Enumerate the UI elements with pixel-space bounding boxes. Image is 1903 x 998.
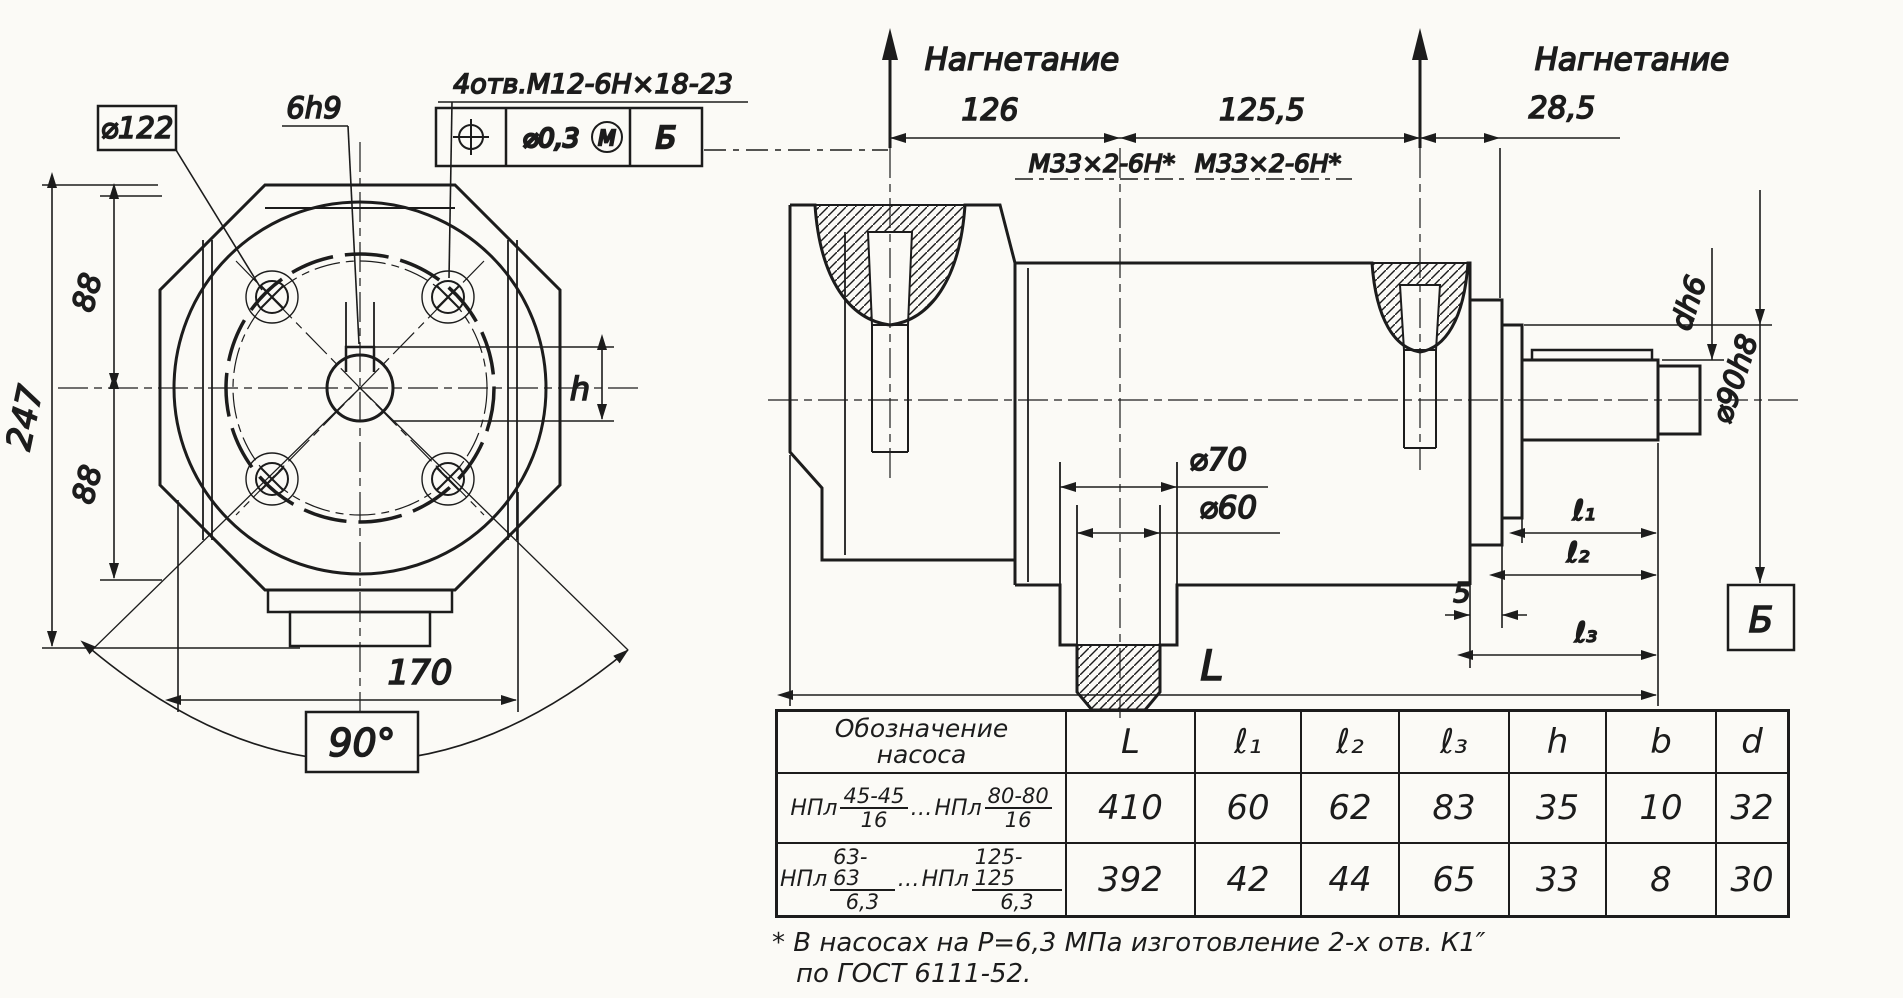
drawing-sheet: 247 88 88 ⌀122 6h9 4отв.М12-6Н×18-23 [0, 0, 1903, 998]
dim5-label: 5 [1453, 576, 1471, 609]
dia60-label: ⌀60 [1199, 490, 1257, 526]
fcf-modifier-label: М [598, 126, 615, 150]
dim-h-label: h [570, 370, 590, 408]
dim-88-top-label: 88 [66, 270, 110, 316]
suction-boss-lines [1060, 462, 1177, 645]
col-header-d: d [1717, 712, 1787, 774]
discharge-left: Нагнетание [882, 28, 1119, 148]
datum-b-flag: Б [1728, 585, 1794, 650]
row2-b: 8 [1607, 844, 1717, 915]
L-label: L [1200, 641, 1223, 690]
discharge-right-label: Нагнетание [1535, 42, 1729, 78]
up-arrow-icon [1412, 28, 1428, 60]
front-view [58, 142, 640, 712]
row2-l1: 42 [1196, 844, 1302, 915]
col-header-L: L [1067, 712, 1196, 774]
side-dimensions: Нагнетание Нагнетание 126 125,5 28,5 М33… [790, 28, 1794, 706]
row1-l1: 60 [1196, 774, 1302, 844]
fcf-tolerance-label: ⌀0,3 [522, 124, 579, 154]
row1-h: 35 [1510, 774, 1607, 844]
discharge-right: Нагнетание [1412, 28, 1729, 148]
position-tolerance-icon [453, 119, 489, 155]
dim-dia60: ⌀60 [1077, 490, 1280, 538]
dim-170-label: 170 [388, 653, 453, 693]
dim-l-group: ℓ₁ ℓ₂ 5 ℓ₃ [1445, 443, 1658, 706]
dia122-label: ⌀122 [101, 111, 174, 145]
angle-90-label: 90° [328, 721, 395, 765]
front-centerlines [58, 142, 640, 712]
dim-dia70: ⌀70 [1060, 442, 1268, 492]
callout-6h9: 6h9 [282, 91, 359, 344]
col-header-b: b [1607, 712, 1717, 774]
col-header-h: h [1510, 712, 1607, 774]
row2-d: 30 [1717, 844, 1787, 915]
designation-header-line2: насоса [835, 742, 1008, 768]
dim-247-label: 247 [0, 381, 52, 453]
side-view [768, 148, 1800, 718]
up-arrow-icon [882, 28, 898, 60]
datum-b-label: Б [1749, 600, 1774, 641]
pump-parameters-table: Обозначение насоса L ℓ₁ ℓ₂ ℓ₃ h b d НПл … [775, 709, 1790, 918]
footnote: * В насосах на Р=6,3 МПа изготовление 2-… [772, 928, 1485, 990]
table-row2-designation: НПл 63-636,3 … НПл 125-1256,3 [778, 844, 1067, 915]
l2-label: ℓ₂ [1566, 536, 1590, 569]
feature-control-frame: ⌀0,3 М Б [436, 108, 888, 166]
discharge-left-label: Нагнетание [925, 42, 1119, 78]
l3-label: ℓ₃ [1574, 616, 1598, 649]
l1-label: ℓ₁ [1572, 494, 1596, 527]
thread-left-label: М33×2-6Н* [1029, 149, 1175, 178]
thread-right-label: М33×2-6Н* [1195, 149, 1341, 178]
thread-callouts: М33×2-6Н* М33×2-6Н* [1015, 149, 1352, 179]
table-row1-designation: НПл 45-4516 … НПл 80-8016 [778, 774, 1067, 844]
col-header-l3: ℓ₃ [1400, 712, 1510, 774]
row1-l2: 62 [1302, 774, 1400, 844]
dim-88-bottom-label: 88 [66, 462, 110, 508]
row2-l2: 44 [1302, 844, 1400, 915]
row1-d: 32 [1717, 774, 1787, 844]
row2-L: 392 [1067, 844, 1196, 915]
row1-l3: 83 [1400, 774, 1510, 844]
dim-dia90h8: ⌀90h8 [1524, 190, 1772, 583]
port-bores [872, 325, 1436, 452]
dia70-label: ⌀70 [1189, 442, 1247, 478]
row1-b: 10 [1607, 774, 1717, 844]
dim-170: 170 [178, 492, 518, 712]
fcf-datum-label: Б [656, 121, 677, 156]
designation-header-line1: Обозначение [835, 716, 1008, 742]
col-header-l1: ℓ₁ [1196, 712, 1302, 774]
suction-stud-hatch [1077, 645, 1160, 710]
footnote-line1: * В насосах на Р=6,3 МПа изготовление 2-… [772, 928, 1485, 959]
col-header-l2: ℓ₂ [1302, 712, 1400, 774]
holes-note-label: 4отв.М12-6Н×18-23 [453, 69, 733, 100]
front-dimensions: 247 88 88 ⌀122 6h9 4отв.М12-6Н×18-23 [0, 69, 888, 772]
dim-28-5-label: 28,5 [1529, 91, 1596, 126]
col-header-designation: Обозначение насоса [778, 712, 1067, 774]
dim-126-label: 126 [961, 93, 1018, 128]
row2-l3: 65 [1400, 844, 1510, 915]
mmc-modifier-icon: М [592, 122, 622, 152]
dim-h: h [374, 347, 614, 421]
dim-125-5-label: 125,5 [1219, 93, 1305, 128]
dim-shaft-d: dh6 [1662, 248, 1724, 360]
footnote-line2: по ГОСТ 6111-52. [772, 959, 1485, 990]
thread-hatching [815, 205, 1468, 710]
row1-L: 410 [1067, 774, 1196, 844]
dim-top-chain: 126 125,5 28,5 [890, 91, 1620, 298]
callout-holes: 4отв.М12-6Н×18-23 [438, 69, 748, 278]
key-6h9-label: 6h9 [286, 91, 341, 125]
row2-h: 33 [1510, 844, 1607, 915]
